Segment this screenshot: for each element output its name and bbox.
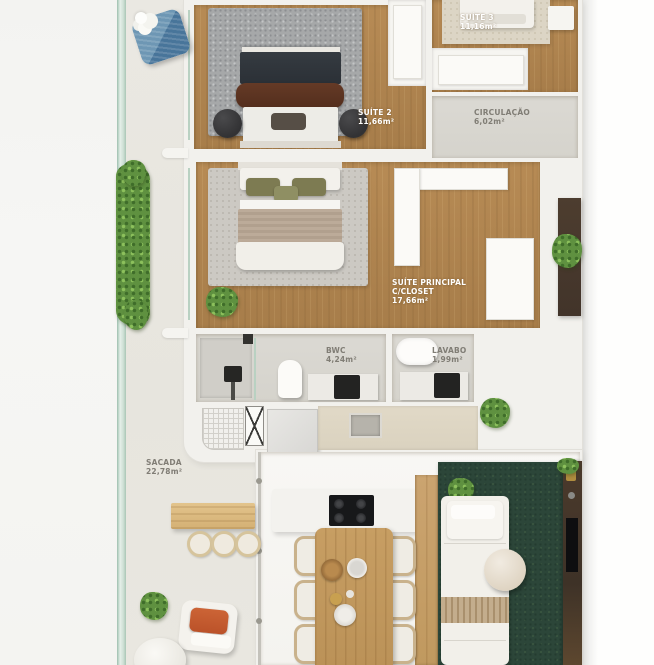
sofa-striped-throw: [441, 597, 509, 623]
hedge-blob-top: [122, 160, 146, 186]
service-grid-area: [202, 408, 244, 450]
sacada-name: SACADA: [146, 458, 182, 467]
suite2-bed-pillow: [271, 113, 306, 130]
cooktop-burner-3: [334, 513, 344, 523]
suite-principal-closet-label: C/CLOSET: [392, 287, 466, 296]
lavabo-area: 1,99m²: [432, 355, 466, 364]
lounge-orange-cushion: [189, 607, 229, 635]
sofa-seam-2: [444, 640, 506, 641]
plan-drop-shadow: [582, 0, 598, 665]
balcony-plant: [140, 592, 168, 620]
suite2-window-glass: [188, 10, 190, 140]
suite3-closet-cabinet: [438, 55, 524, 85]
table-plate-1: [321, 559, 343, 581]
refrigerator: [267, 409, 318, 456]
divider-post-3: [256, 618, 262, 624]
wall-stub-1: [162, 148, 188, 158]
master-closet-cabinet-left: [394, 168, 420, 266]
cooktop-burner-1: [334, 499, 344, 509]
bwc-shower-head: [243, 334, 253, 344]
wood-walkway-strip: [415, 475, 438, 665]
suite2-side-table-left: [213, 109, 242, 138]
sacada-area: 22,78m²: [146, 467, 182, 476]
room-label-bwc: BWC 4,24m²: [326, 346, 357, 364]
bwc-shower-fixture: [224, 366, 242, 382]
suite3-nightstand: [548, 6, 574, 30]
suite2-bed-headboard: [240, 141, 341, 148]
master-bed-duvet: [236, 242, 344, 270]
table-bowl: [330, 593, 342, 605]
floor-plan-canvas: SUÍTE 2 11,66m² SUÍTE 3 11,16m² CIRCULAÇ…: [0, 0, 654, 665]
kitchen-sink: [349, 413, 382, 438]
hall-plant: [480, 398, 510, 428]
divider-post-1: [256, 478, 262, 484]
suite-principal-name: SUÍTE PRINCIPAL: [392, 278, 466, 287]
balcony-bar-counter: [171, 503, 255, 529]
room-label-sacada: SACADA 22,78m²: [146, 458, 182, 476]
room-label-suite2: SUÍTE 2 11,66m²: [358, 108, 394, 126]
bwc-shower-column: [231, 382, 235, 400]
wall-stub-2: [162, 328, 188, 338]
bwc-area: 4,24m²: [326, 355, 357, 364]
bwc-sink: [334, 375, 360, 399]
shaft-x-symbol: [245, 406, 264, 446]
room-label-circulacao: CIRCULAÇÃO 6,02m²: [474, 108, 530, 126]
suite2-closet-cabinet: [393, 5, 422, 79]
master-bed-taupe-blanket: [238, 209, 342, 244]
bwc-toilet: [278, 360, 302, 398]
balcony-white-flower: [135, 12, 147, 24]
bar-stool-3: [235, 531, 261, 557]
circulacao-floor: [432, 96, 578, 158]
panel-plant: [557, 458, 579, 474]
suite3-area: 11,16m²: [460, 22, 496, 31]
bar-stool-2: [211, 531, 237, 557]
kitchen-counter: [318, 406, 478, 450]
room-label-lavabo: LAVABO 1,99m²: [432, 346, 466, 364]
circulacao-name: CIRCULAÇÃO: [474, 108, 530, 117]
panel-speaker-knob: [568, 492, 575, 499]
suite2-bed-dark-blanket: [240, 52, 341, 84]
suite2-area: 11,66m²: [358, 117, 394, 126]
bwc-shower-glass: [254, 338, 256, 400]
round-pouf: [484, 549, 526, 591]
table-cup: [346, 590, 354, 598]
wall-planter-plant: [552, 234, 582, 268]
lavabo-sink: [434, 373, 460, 398]
tv-screen: [566, 518, 578, 572]
master-plant: [206, 287, 238, 317]
table-plate-2: [347, 558, 367, 578]
sofa-pillow: [451, 505, 495, 519]
master-closet-cabinet-right: [486, 238, 534, 320]
suite2-bed-brown-throw: [236, 83, 344, 108]
suite3-name: SUÍTE 3: [460, 13, 496, 22]
bar-stool-1: [187, 531, 213, 557]
suite-principal-area: 17,66m²: [392, 296, 466, 305]
suite-principal-window-glass: [188, 168, 190, 320]
dining-table: [315, 528, 393, 665]
room-label-suite-principal: SUÍTE PRINCIPAL C/CLOSET 17,66m²: [392, 278, 466, 305]
exterior-left-background: [0, 0, 117, 665]
room-label-suite3: SUÍTE 3 11,16m²: [460, 13, 496, 31]
bwc-name: BWC: [326, 346, 357, 355]
cooktop-burner-4: [356, 513, 366, 523]
lavabo-name: LAVABO: [432, 346, 466, 355]
suite2-name: SUÍTE 2: [358, 108, 394, 117]
hedge-blob-bottom: [124, 300, 148, 330]
sofa-seam-1: [444, 543, 506, 544]
balcony-glass-railing: [117, 0, 126, 665]
cooktop-burner-2: [356, 499, 366, 509]
table-plate-3: [334, 604, 356, 626]
circulacao-area: 6,02m²: [474, 117, 530, 126]
